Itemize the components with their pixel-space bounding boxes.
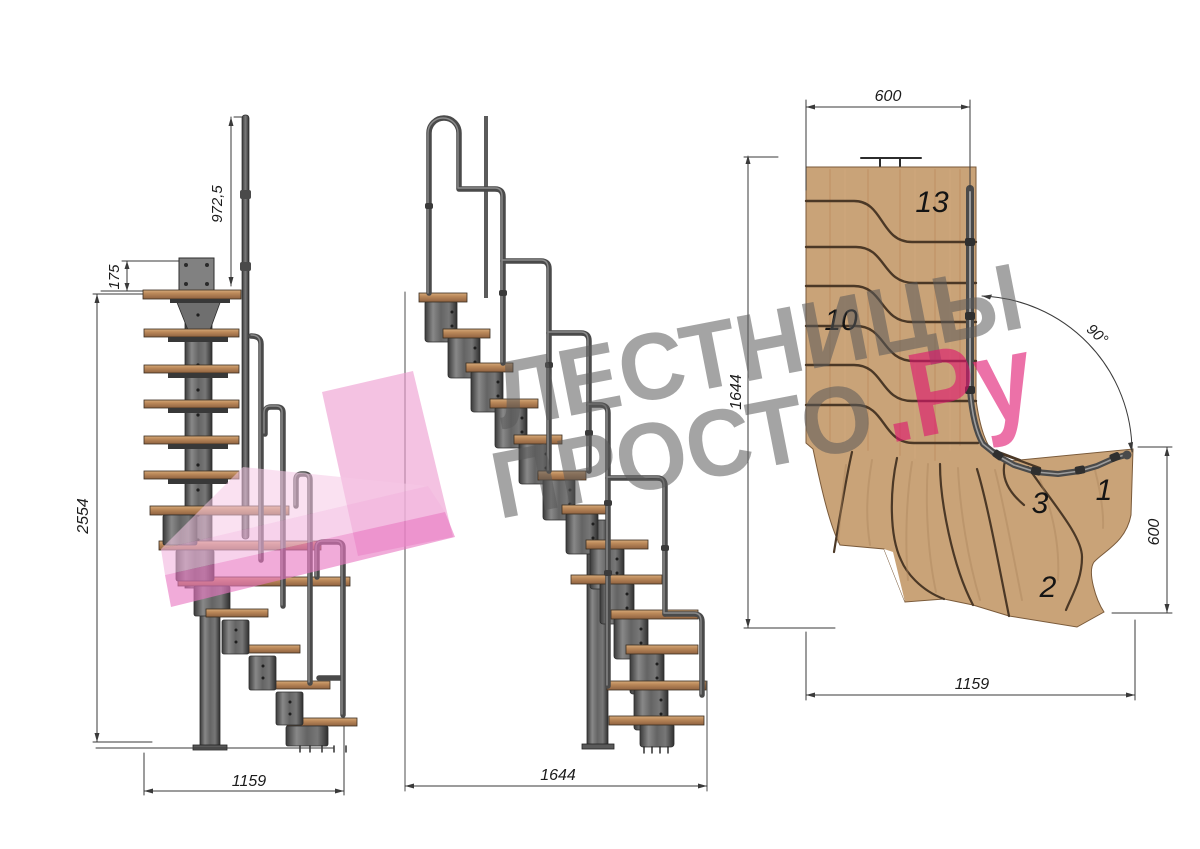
svg-text:2554: 2554 — [75, 498, 92, 535]
svg-text:3: 3 — [1032, 487, 1049, 520]
svg-text:.Ру: .Ру — [869, 308, 1044, 469]
svg-text:1644: 1644 — [540, 767, 576, 784]
svg-text:972,5: 972,5 — [209, 185, 226, 223]
svg-text:13: 13 — [915, 186, 949, 219]
svg-text:600: 600 — [1146, 519, 1163, 546]
svg-text:1159: 1159 — [232, 773, 267, 790]
svg-text:600: 600 — [875, 88, 902, 105]
svg-text:90°: 90° — [1083, 321, 1111, 349]
svg-text:1159: 1159 — [955, 676, 990, 693]
svg-text:175: 175 — [106, 264, 123, 290]
svg-text:2: 2 — [1039, 571, 1057, 604]
svg-text:1: 1 — [1096, 474, 1113, 507]
